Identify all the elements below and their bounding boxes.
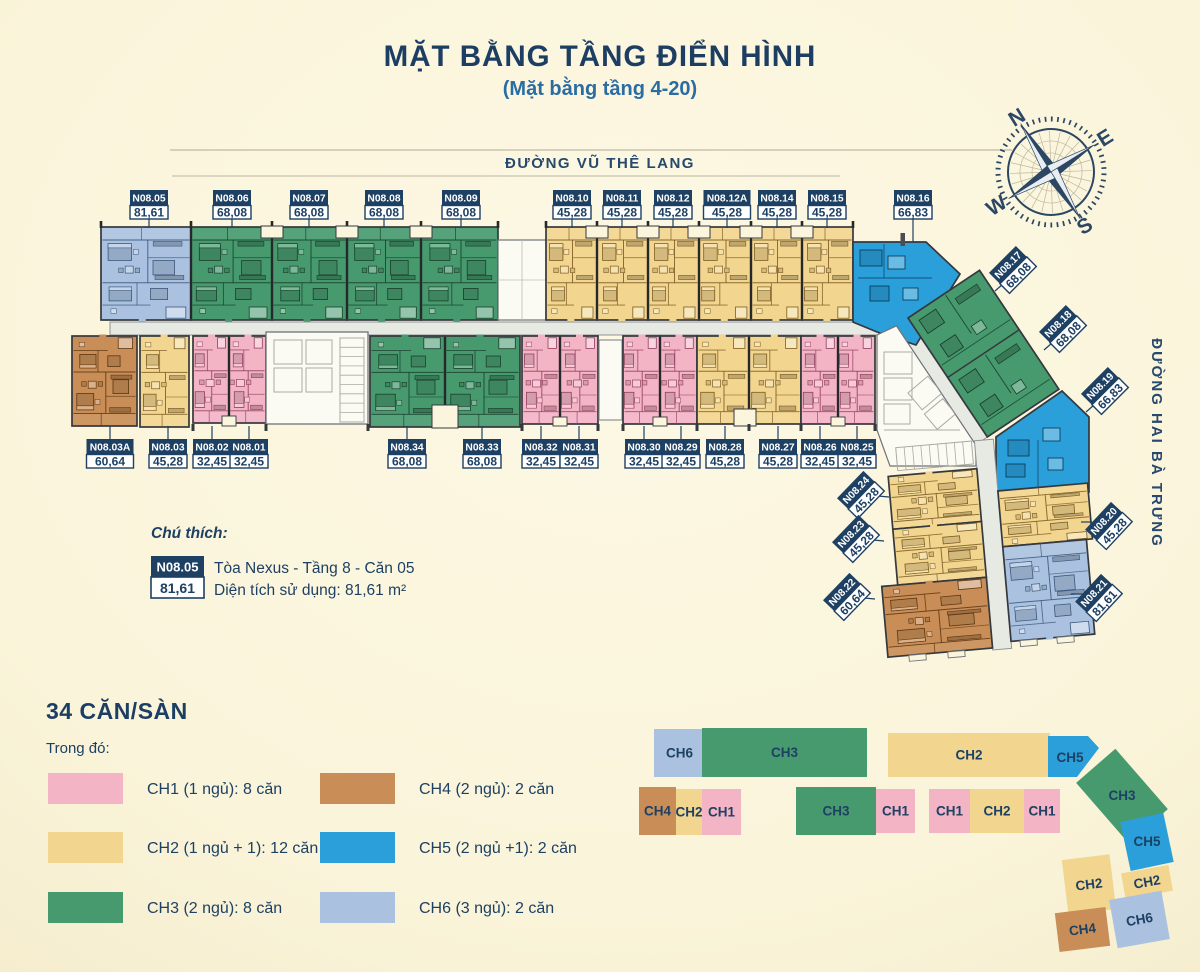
svg-text:32,45: 32,45 <box>666 455 696 469</box>
svg-text:CH1: CH1 <box>708 805 735 820</box>
svg-text:68,08: 68,08 <box>467 455 497 469</box>
svg-text:N08.34: N08.34 <box>390 443 423 454</box>
svg-text:45,28: 45,28 <box>712 206 742 220</box>
svg-text:ĐƯỜNG HAI BÀ TRƯNG: ĐƯỜNG HAI BÀ TRƯNG <box>1148 338 1166 548</box>
svg-text:CH6 (3 ngủ): 2 căn: CH6 (3 ngủ): 2 căn <box>419 900 554 917</box>
svg-text:N08.05: N08.05 <box>132 194 165 205</box>
svg-text:CH4: CH4 <box>644 804 671 819</box>
svg-text:32,45: 32,45 <box>526 455 556 469</box>
svg-text:N08.16: N08.16 <box>896 194 929 205</box>
svg-text:68,08: 68,08 <box>392 455 422 469</box>
svg-text:N08.08: N08.08 <box>367 194 400 205</box>
svg-text:(Mặt bằng tầng 4-20): (Mặt bằng tầng 4-20) <box>503 76 697 100</box>
svg-text:45,28: 45,28 <box>153 455 183 469</box>
svg-text:N08.27: N08.27 <box>761 443 794 454</box>
svg-text:81,61: 81,61 <box>160 580 195 596</box>
svg-text:CH5: CH5 <box>1133 834 1160 849</box>
svg-text:32,45: 32,45 <box>234 455 264 469</box>
svg-text:CH6: CH6 <box>666 746 693 761</box>
svg-text:N08.15: N08.15 <box>810 194 843 205</box>
svg-text:CH3: CH3 <box>1108 788 1135 803</box>
svg-text:N08.11: N08.11 <box>606 194 639 205</box>
svg-text:N08.30: N08.30 <box>627 443 660 454</box>
svg-text:45,28: 45,28 <box>607 206 637 220</box>
svg-text:CH3: CH3 <box>771 745 798 760</box>
svg-text:N08.03: N08.03 <box>151 443 184 454</box>
svg-text:N08.02: N08.02 <box>195 443 228 454</box>
svg-text:32,45: 32,45 <box>197 455 227 469</box>
svg-text:60,64: 60,64 <box>95 455 125 469</box>
svg-text:Diện tích sử dụng: 81,61 m²: Diện tích sử dụng: 81,61 m² <box>214 582 406 599</box>
svg-text:81,61: 81,61 <box>134 206 164 220</box>
svg-text:CH5 (2 ngủ +1): 2 căn: CH5 (2 ngủ +1): 2 căn <box>419 840 577 857</box>
svg-text:CH1: CH1 <box>882 804 909 819</box>
svg-text:68,08: 68,08 <box>217 206 247 220</box>
svg-text:CH1 (1 ngủ): 8 căn: CH1 (1 ngủ): 8 căn <box>147 781 282 798</box>
svg-text:32,45: 32,45 <box>805 455 835 469</box>
svg-text:N08.32: N08.32 <box>524 443 557 454</box>
svg-text:N08.06: N08.06 <box>215 194 248 205</box>
svg-text:N08.09: N08.09 <box>444 194 477 205</box>
svg-text:CH3: CH3 <box>822 804 849 819</box>
svg-text:N08.25: N08.25 <box>840 443 873 454</box>
svg-text:45,28: 45,28 <box>763 455 793 469</box>
svg-text:68,08: 68,08 <box>446 206 476 220</box>
svg-text:N08.10: N08.10 <box>555 194 588 205</box>
svg-text:CH1: CH1 <box>1028 804 1055 819</box>
svg-text:45,28: 45,28 <box>762 206 792 220</box>
svg-text:68,08: 68,08 <box>369 206 399 220</box>
svg-text:68,08: 68,08 <box>294 206 324 220</box>
svg-text:N08.12: N08.12 <box>656 194 689 205</box>
svg-text:N08.03A: N08.03A <box>90 443 131 454</box>
svg-text:N08.26: N08.26 <box>803 443 836 454</box>
svg-text:ĐƯỜNG VŨ THÊ LANG: ĐƯỜNG VŨ THÊ LANG <box>505 154 695 172</box>
svg-text:CH5: CH5 <box>1056 750 1083 765</box>
svg-text:CH2: CH2 <box>983 804 1010 819</box>
svg-text:CH2: CH2 <box>955 748 982 763</box>
svg-text:N08.33: N08.33 <box>465 443 498 454</box>
svg-text:Chú thích:: Chú thích: <box>151 525 228 542</box>
svg-text:45,28: 45,28 <box>812 206 842 220</box>
svg-text:Tòa Nexus - Tầng 8 - Căn 05: Tòa Nexus - Tầng 8 - Căn 05 <box>214 560 414 577</box>
svg-text:CH2 (1 ngủ + 1): 12 căn: CH2 (1 ngủ + 1): 12 căn <box>147 840 318 857</box>
svg-text:45,28: 45,28 <box>557 206 587 220</box>
svg-text:N08.31: N08.31 <box>562 443 595 454</box>
svg-text:N08.28: N08.28 <box>708 443 741 454</box>
svg-text:32,45: 32,45 <box>629 455 659 469</box>
svg-text:45,28: 45,28 <box>658 206 688 220</box>
svg-text:N08.07: N08.07 <box>292 194 325 205</box>
svg-text:N08.12A: N08.12A <box>707 194 748 205</box>
svg-text:N08.29: N08.29 <box>664 443 697 454</box>
svg-text:CH1: CH1 <box>936 804 963 819</box>
svg-text:CH3 (2 ngủ): 8 căn: CH3 (2 ngủ): 8 căn <box>147 900 282 917</box>
svg-text:66,83: 66,83 <box>898 206 928 220</box>
svg-text:32,45: 32,45 <box>564 455 594 469</box>
svg-text:N08.14: N08.14 <box>760 194 793 205</box>
svg-text:32,45: 32,45 <box>842 455 872 469</box>
svg-text:CH2: CH2 <box>675 805 702 820</box>
svg-text:N08.01: N08.01 <box>232 443 265 454</box>
svg-text:N08.05: N08.05 <box>157 560 199 575</box>
svg-text:34 CĂN/SÀN: 34 CĂN/SÀN <box>46 697 188 724</box>
svg-text:MẶT BẰNG TẦNG ĐIỂN HÌNH: MẶT BẰNG TẦNG ĐIỂN HÌNH <box>384 39 817 73</box>
svg-text:45,28: 45,28 <box>710 455 740 469</box>
svg-text:CH4 (2 ngủ): 2 căn: CH4 (2 ngủ): 2 căn <box>419 781 554 798</box>
svg-text:Trong đó:: Trong đó: <box>46 740 110 757</box>
